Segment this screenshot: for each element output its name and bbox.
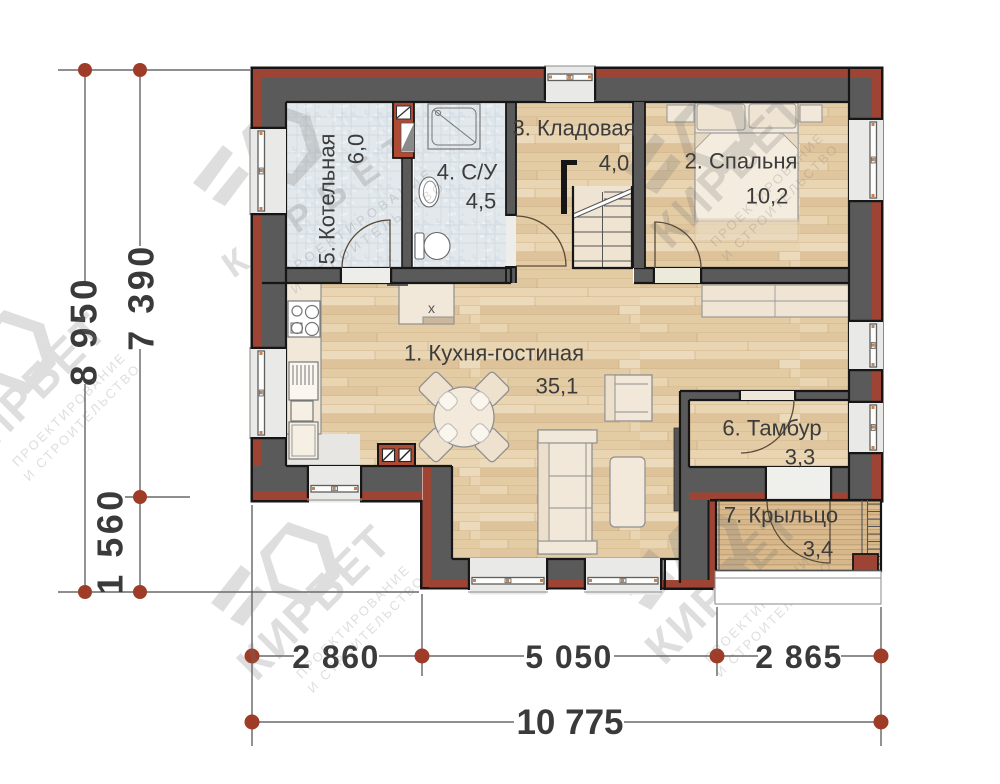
- svg-text:6,0: 6,0: [344, 134, 369, 165]
- svg-text:7 390: 7 390: [121, 243, 162, 351]
- svg-text:3,4: 3,4: [803, 537, 834, 562]
- svg-text:3,3: 3,3: [785, 445, 816, 470]
- svg-text:5. Котельная: 5. Котельная: [315, 134, 340, 265]
- svg-text:4,5: 4,5: [466, 189, 497, 214]
- svg-text:1. Кухня-гостиная: 1. Кухня-гостиная: [404, 341, 584, 366]
- svg-text:2. Спальня: 2. Спальня: [685, 149, 798, 174]
- svg-text:3. Кладовая: 3. Кладовая: [512, 116, 635, 141]
- svg-text:4. С/У: 4. С/У: [437, 160, 498, 185]
- svg-text:4,0: 4,0: [599, 151, 630, 176]
- svg-text:6. Тамбур: 6. Тамбур: [722, 416, 821, 441]
- svg-text:2 865: 2 865: [755, 639, 843, 675]
- svg-text:10,2: 10,2: [746, 184, 789, 209]
- svg-text:35,1: 35,1: [536, 374, 579, 399]
- svg-text:7. Крыльцо: 7. Крыльцо: [724, 503, 838, 528]
- svg-text:10 775: 10 775: [516, 703, 623, 742]
- svg-text:x: x: [428, 300, 435, 316]
- svg-text:1 560: 1 560: [90, 487, 131, 595]
- svg-text:5 050: 5 050: [525, 639, 613, 675]
